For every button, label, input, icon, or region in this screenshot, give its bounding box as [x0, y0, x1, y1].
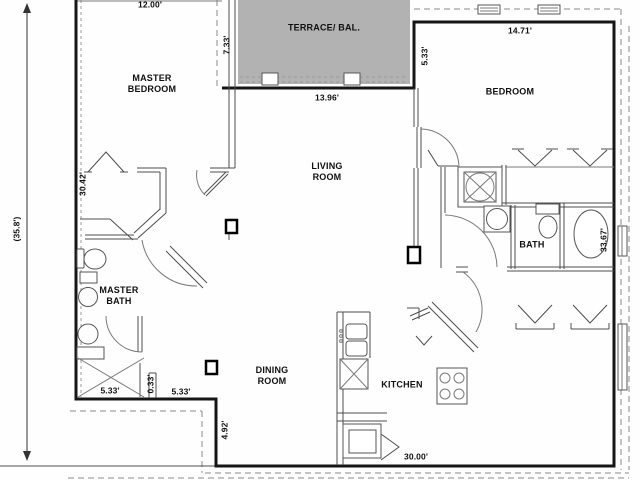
sink — [79, 288, 98, 307]
stove — [437, 368, 467, 404]
dimension-step-depth: 4.92' — [220, 420, 231, 439]
sink-basin — [346, 324, 367, 339]
dimension-bath-side: 33.67' — [599, 228, 610, 252]
sink — [78, 324, 98, 344]
sink-basin — [346, 341, 367, 356]
label-kitchen: KITCHEN — [381, 379, 422, 390]
toilet-tank — [536, 204, 559, 214]
wall-markers — [206, 220, 420, 374]
dimension-mbath-a: 5.33' — [100, 386, 119, 397]
vanity-counter — [77, 347, 104, 359]
dimension-bedroom-width: 14.71' — [508, 26, 532, 37]
terrace-balcony — [238, 0, 410, 85]
dimension-terrace-width: 13.96' — [315, 93, 339, 104]
dimension-top-width: 12.00' — [138, 0, 162, 10]
terrace-post — [344, 73, 360, 85]
dimension-overall-left: (35.8') — [12, 217, 23, 242]
master-bath-fixtures — [77, 249, 144, 397]
closet-chevrons — [84, 149, 613, 323]
ruler-arrow-down — [23, 451, 31, 461]
sink — [487, 209, 508, 230]
dimension-terrace-depth: 7.33' — [222, 35, 233, 54]
shelf — [80, 272, 97, 283]
label-master-bedroom: MASTER BEDROOM — [128, 73, 176, 96]
dimension-mbath-jog: 0.33' — [146, 374, 157, 393]
label-bath: BATH — [519, 239, 544, 250]
label-terrace: TERRACE/ BAL. — [288, 22, 360, 33]
dimension-left-upper: 30.42' — [78, 172, 89, 196]
kitchen-fixtures — [340, 324, 467, 458]
label-dining-room: DINING ROOM — [256, 365, 289, 388]
terrace-fill — [238, 0, 410, 84]
terrace-post — [262, 73, 278, 85]
toilet-bowl — [539, 216, 557, 238]
dimension-mbath-b: 5.33' — [171, 387, 190, 398]
dimension-bottom-width: 30.00' — [404, 452, 428, 463]
doors — [106, 127, 497, 460]
toilet-tank — [77, 249, 84, 268]
label-living-room: LIVING ROOM — [311, 161, 342, 184]
ruler-arrow-up — [23, 3, 31, 13]
label-master-bath: MASTER BATH — [99, 285, 138, 308]
toilet-bowl — [84, 249, 106, 269]
floorplan-page: 12.00' MASTER BEDROOM TERRACE/ BAL. 7.33… — [0, 0, 640, 480]
label-bedroom: BEDROOM — [486, 86, 534, 97]
dimension-bedroom-setback: 5.33' — [420, 46, 431, 65]
